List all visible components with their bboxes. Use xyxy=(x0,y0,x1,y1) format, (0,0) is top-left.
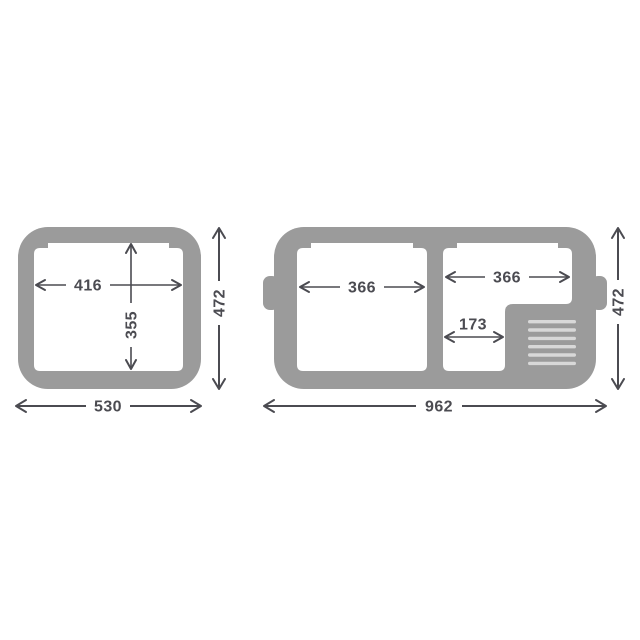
dim-label-173: 173 xyxy=(459,317,487,334)
dim-label-472-right: 472 xyxy=(611,288,628,316)
left-unit-compartment xyxy=(34,243,183,371)
dim-label-366-left: 366 xyxy=(348,280,376,297)
left-unit: 416 355 530 xyxy=(16,227,229,416)
dimension-left-outer-depth: 472 xyxy=(210,228,229,389)
dimension-diagram-canvas: 416 355 530 xyxy=(0,0,640,640)
dim-label-416: 416 xyxy=(74,278,102,295)
right-unit-left-compartment xyxy=(297,243,427,371)
dimension-right-outer-width: 962 xyxy=(264,397,606,416)
dim-label-962: 962 xyxy=(425,399,453,416)
dim-label-366-right: 366 xyxy=(493,270,521,287)
dimension-right-outer-depth: 472 xyxy=(609,228,628,389)
dim-label-472-left: 472 xyxy=(212,289,229,317)
dimension-left-outer-width: 530 xyxy=(16,397,201,416)
right-unit: 366 366 173 xyxy=(263,227,628,416)
dim-label-355: 355 xyxy=(124,311,141,339)
dimension-diagram: 416 355 530 xyxy=(0,0,640,640)
dim-label-530: 530 xyxy=(94,399,122,416)
